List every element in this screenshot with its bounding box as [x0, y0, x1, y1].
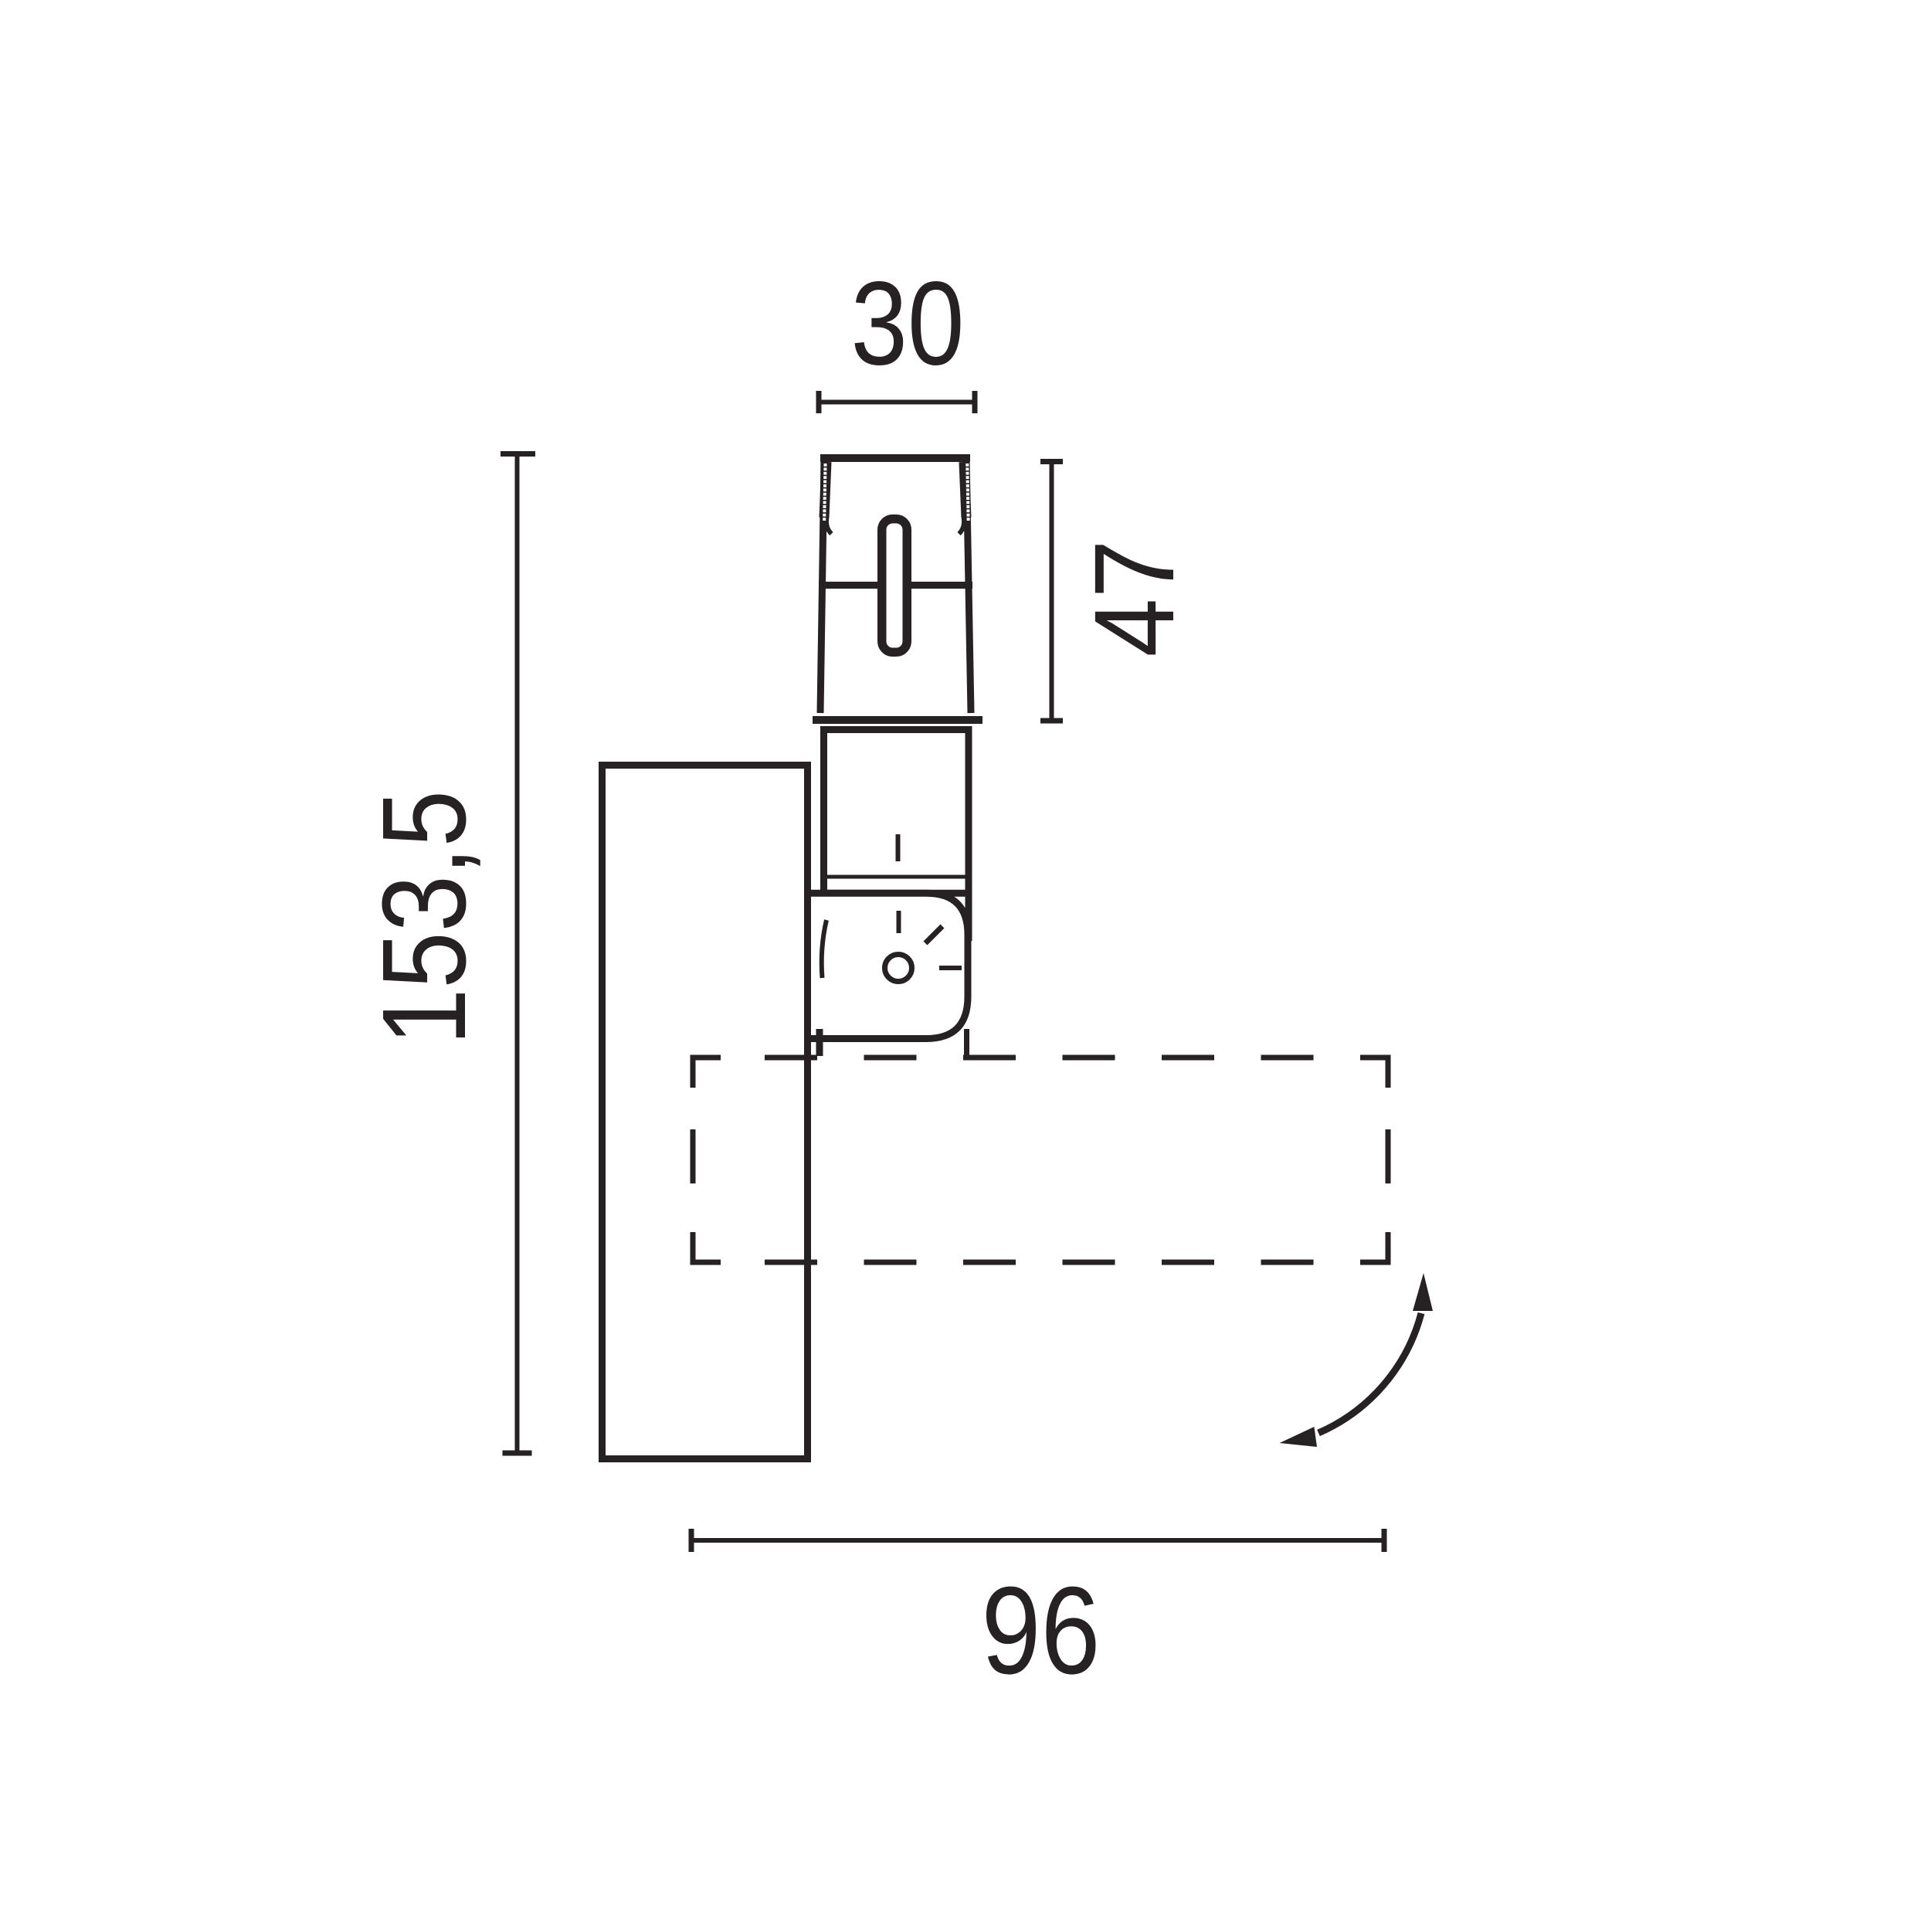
svg-text:47: 47	[1071, 540, 1198, 657]
svg-text:153,5: 153,5	[358, 790, 490, 1045]
svg-text:30: 30	[851, 257, 965, 390]
svg-text:96: 96	[982, 1561, 1101, 1700]
